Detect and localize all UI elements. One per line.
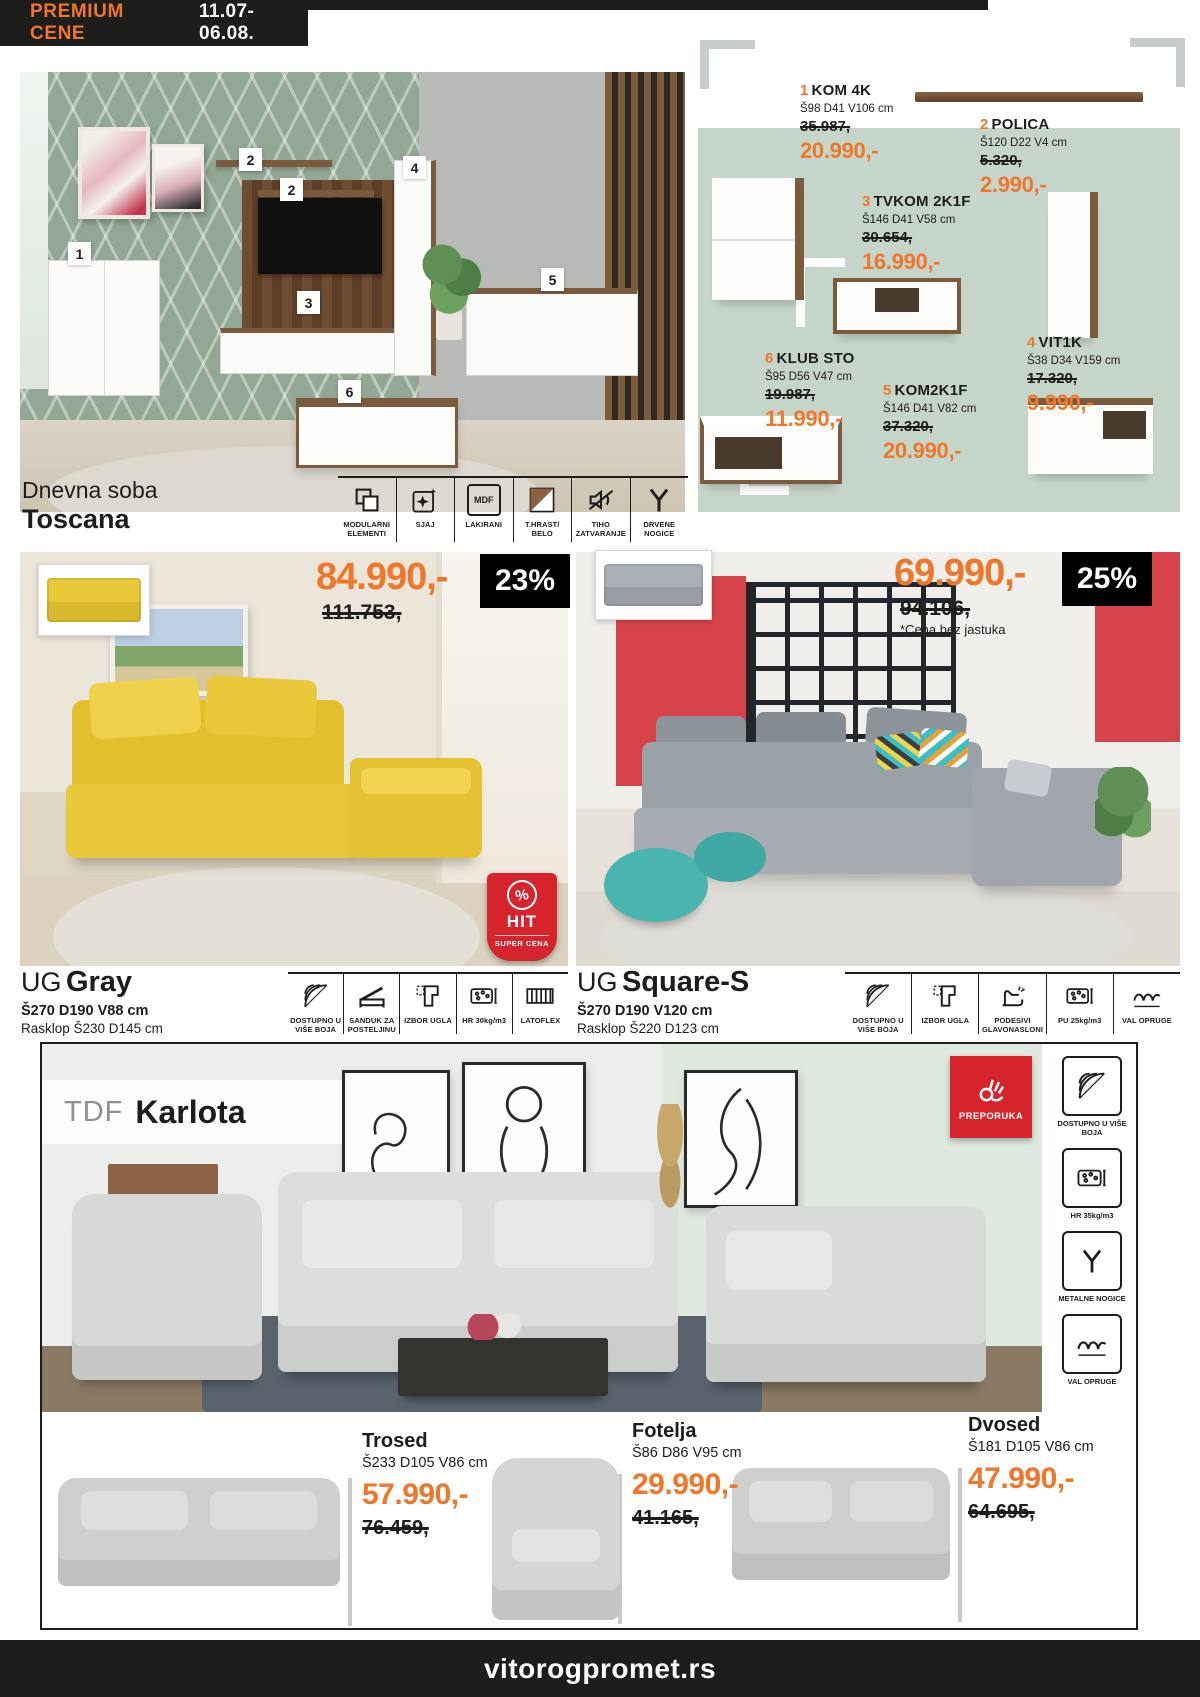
product-kom4k: 1KOM 4K Š98 D41 V106 cm 35.987, 20.990,- — [800, 82, 893, 164]
price: 16.990,- — [862, 248, 971, 276]
dimensions: Š233 D105 V86 cm — [362, 1454, 488, 1473]
price: 84.990,- — [316, 556, 447, 599]
feature-mdf: MDF LAKIRANI — [454, 478, 513, 542]
dimensions: Š181 D105 V86 cm — [968, 1438, 1094, 1457]
old-price: 5.320, — [980, 152, 1067, 171]
product-dims: Š146 D41 V58 cm — [862, 213, 971, 227]
karlota-title-band: TDF Karlota — [42, 1080, 342, 1144]
pillow — [918, 728, 970, 769]
feature-modular: MODULARNI ELEMENTI — [338, 478, 396, 542]
product-name: 3TVKOM 2K1F — [862, 193, 971, 212]
wave-springs-icon — [1132, 979, 1162, 1013]
foam-icon — [1065, 979, 1095, 1013]
fold-dimensions: Rasklop Š230 D145 cm — [21, 1022, 163, 1036]
product-polica: 2POLICA Š120 D22 V4 cm 5.320, 2.990,- — [980, 116, 1067, 198]
product-vit1k: 4VIT1K Š38 D34 V159 cm 17.320, 9.990,- — [1027, 334, 1120, 416]
product-name: 5KOM2K1F — [883, 382, 976, 401]
room-tag: 2 — [239, 148, 262, 171]
room-tag: 6 — [338, 380, 361, 403]
price: 9.990,- — [1027, 389, 1120, 417]
karlota-brand: TDF — [64, 1096, 123, 1129]
flyer-page: PREMIUM CENE 11.07-06.08. 1 2 2 3 4 5 6 — [0, 0, 1200, 1697]
price: 11.990,- — [765, 405, 855, 433]
coffee-table — [694, 832, 766, 882]
fold-dimensions: Rasklop Š220 D123 cm — [577, 1022, 749, 1036]
old-price: 30.654, — [862, 229, 971, 248]
product-klub-sto: 6KLUB STO Š95 D56 V47 cm 19.987, 11.990,… — [765, 350, 855, 432]
feature-foam-hr: HR 30kg/m3 — [456, 974, 512, 1034]
wall-shelf — [258, 190, 374, 197]
foldout-thumbnail — [595, 550, 712, 620]
wood-white-icon — [527, 483, 557, 517]
commode — [48, 260, 160, 396]
old-price: 94.106, — [900, 597, 970, 621]
product-tvkom: 3TVKOM 2K1F Š146 D41 V58 cm 30.654, 16.9… — [862, 193, 971, 275]
feature-wave-springs: VAL OPRUGE — [1050, 1314, 1134, 1386]
feature-colors: DOSTUPNO U VIŠE BOJA — [845, 974, 911, 1034]
dvosed-image — [732, 1468, 950, 1580]
promo-title: PREMIUM CENE — [30, 1, 183, 45]
item-trosed: Trosed Š233 D105 V86 cm 57.990,- 76.459, — [362, 1428, 488, 1541]
old-price: 19.987, — [765, 386, 855, 405]
feature-foam-pu: PU 25kg/m3 — [1046, 974, 1113, 1034]
feature-shine: SJAJ — [396, 478, 455, 542]
set-caption-type: Dnevna soba — [22, 478, 158, 504]
product-dims: Š98 D41 V106 cm — [800, 102, 893, 116]
room-tag: 3 — [297, 291, 320, 314]
metal-legs-icon — [1062, 1231, 1122, 1291]
wall-shelf — [216, 160, 332, 167]
color-fan-icon — [1062, 1056, 1122, 1116]
coffee-table — [398, 1338, 608, 1396]
color-fan-icon — [864, 979, 892, 1013]
two-seat-sofa — [706, 1206, 986, 1382]
old-price: 64.695, — [968, 1499, 1094, 1525]
window — [20, 72, 48, 389]
feature-silent-close: TIHO ZATVARANJE — [571, 478, 630, 542]
product-name: 4VIT1K — [1027, 334, 1120, 353]
toscana-feature-row: MODULARNI ELEMENTI SJAJ MDF LAKIRANI T.H… — [338, 476, 688, 542]
price: 29.990,- — [632, 1465, 742, 1504]
karlota-name: Karlota — [135, 1094, 245, 1131]
sofa-cushion — [205, 675, 318, 739]
feature-storage: SANDUK ZA POSTELJINU — [343, 974, 399, 1034]
price: 47.990,- — [968, 1459, 1094, 1498]
product-dims: Š95 D56 V47 cm — [765, 370, 855, 384]
wall-art — [152, 144, 204, 212]
feature-latoflex: LATOFLEX — [512, 974, 568, 1034]
coffee-table — [604, 848, 708, 922]
feature-foam-hr: HR 35kg/m3 — [1050, 1148, 1134, 1220]
plant — [1095, 767, 1151, 847]
sofa-seat — [66, 784, 366, 858]
corner-choice-icon — [414, 979, 442, 1013]
ug-gray-title: UG Gray Š270 D190 V88 cm Rasklop Š230 D1… — [21, 968, 163, 1035]
product-name: 6KLUB STO — [765, 350, 855, 369]
wooden-legs-icon — [644, 483, 674, 517]
coffee-table — [296, 398, 458, 468]
product-dims: Š38 D34 V159 cm — [1027, 354, 1120, 368]
foldout-sofa-sketch — [47, 578, 142, 621]
silent-close-icon — [586, 483, 616, 517]
feature-colors: DOSTUPNO U VIŠE BOJA — [288, 974, 343, 1034]
vit1k-image — [1048, 192, 1098, 338]
promo-date-range: 11.07-06.08. — [199, 1, 308, 45]
price: 57.990,- — [362, 1475, 488, 1514]
tv-stand — [220, 328, 408, 374]
room-tag: 5 — [541, 268, 564, 291]
toscana-room-photo: 1 2 2 3 4 5 6 — [20, 72, 685, 512]
preporuka-badge: PREPORUKA — [950, 1056, 1032, 1138]
footer-site-link[interactable]: vitorogpromet.rs — [484, 1653, 716, 1685]
karlota-feature-column: DOSTUPNO U VIŠE BOJA HR 35kg/m3 METALNE … — [1050, 1056, 1134, 1386]
separator — [958, 1468, 962, 1622]
product-dims: Š120 D22 V4 cm — [980, 136, 1067, 150]
sofa-cushion — [88, 676, 202, 740]
price: 2.990,- — [980, 171, 1067, 199]
separator — [348, 1478, 352, 1626]
room-tag: 2 — [280, 178, 303, 201]
tvkom-image — [833, 278, 961, 334]
foam-icon — [469, 979, 499, 1013]
discount-badge: 23% — [480, 554, 570, 608]
rug — [53, 867, 480, 966]
discount-badge: 25% — [1062, 552, 1152, 606]
pillow — [874, 731, 924, 771]
price-note: *Cena bez jastuka — [900, 622, 1006, 637]
feature-wave-springs: VAL OPRUGE — [1113, 974, 1180, 1034]
tv-screen — [258, 198, 382, 274]
wave-springs-icon — [1062, 1314, 1122, 1374]
header-badge: PREMIUM CENE 11.07-06.08. — [0, 0, 308, 46]
price: 20.990,- — [800, 137, 893, 165]
old-price: 76.459, — [362, 1515, 488, 1541]
shine-icon — [410, 483, 440, 517]
set-caption-name: Toscana — [22, 504, 158, 534]
corner-bracket — [700, 40, 755, 89]
adjustable-headrest-icon — [998, 979, 1028, 1013]
storage-box-icon — [357, 979, 387, 1013]
room-tag: 4 — [403, 156, 426, 179]
ug-square-title: UG Square-S Š270 D190 V120 cm Rasklop Š2… — [577, 968, 749, 1035]
polica-image — [915, 92, 1143, 102]
foldout-thumbnail — [38, 564, 150, 636]
dimensions: Š270 D190 V88 cm — [21, 1004, 163, 1019]
dried-plant — [640, 1104, 700, 1214]
feature-corner-choice: IZBOR UGLA — [911, 974, 978, 1034]
trosed-image — [58, 1478, 340, 1586]
room-tag: 1 — [68, 242, 91, 265]
old-price: 41.165, — [632, 1505, 742, 1531]
wall-art — [684, 1070, 798, 1208]
feature-corner-choice: IZBOR UGLA — [399, 974, 455, 1034]
feature-wooden-legs: DRVENE NOGICE — [630, 478, 689, 542]
item-fotelja: Fotelja Š86 D86 V95 cm 29.990,- 41.165, — [632, 1418, 742, 1531]
sofa-chaise — [350, 758, 482, 858]
color-fan-icon — [302, 979, 330, 1013]
feature-colors: DOSTUPNO U VIŠE BOJA — [1050, 1056, 1134, 1137]
ug-square-feature-row: DOSTUPNO U VIŠE BOJA IZBOR UGLA PODESIVI… — [845, 972, 1180, 1034]
kom4k-image — [712, 178, 804, 300]
dimensions: Š270 D190 V120 cm — [577, 1004, 749, 1019]
latoflex-icon — [525, 979, 555, 1013]
feature-metal-legs: METALNE NOGICE — [1050, 1231, 1134, 1303]
mdf-icon: MDF — [467, 483, 501, 517]
price: 69.990,- — [894, 552, 1025, 595]
old-price: 111.753, — [322, 601, 401, 625]
hit-super-cena-badge: % HIT SUPER CENA — [487, 873, 557, 961]
corner-choice-icon — [931, 979, 959, 1013]
armchair — [72, 1194, 262, 1380]
product-dims: Š146 D41 V82 cm — [883, 402, 976, 416]
foldout-sofa-sketch — [604, 564, 703, 606]
ok-hand-icon — [974, 1073, 1008, 1107]
item-dvosed: Dvosed Š181 D105 V86 cm 47.990,- 64.695, — [968, 1412, 1094, 1525]
feature-oak-white: T.HRAST/ BELO — [513, 478, 572, 542]
old-price: 35.987, — [800, 118, 893, 137]
old-price: 37.320, — [883, 418, 976, 437]
dimensions: Š86 D86 V95 cm — [632, 1444, 742, 1463]
footer-bar: vitorogpromet.rs — [0, 1640, 1200, 1697]
wall-art — [78, 127, 150, 219]
plant — [416, 230, 482, 316]
fotelja-image — [492, 1458, 620, 1620]
product-kom2k1f: 5KOM2K1F Š146 D41 V82 cm 37.320, 20.990,… — [883, 382, 976, 464]
product-name: 1KOM 4K — [800, 82, 893, 101]
corner-bracket — [1130, 38, 1185, 87]
ug-gray-feature-row: DOSTUPNO U VIŠE BOJA SANDUK ZA POSTELJIN… — [288, 972, 568, 1034]
foam-icon — [1062, 1148, 1122, 1208]
product-name: 2POLICA — [980, 116, 1067, 135]
feature-adjustable-headrests: PODESIVI GLAVONASLONI — [978, 974, 1045, 1034]
old-price: 17.320, — [1027, 370, 1120, 389]
set-caption: Dnevna soba Toscana — [22, 478, 158, 534]
percent-icon: % — [505, 878, 540, 913]
price: 20.990,- — [883, 437, 976, 465]
modular-elements-icon — [352, 483, 382, 517]
sideboard — [466, 288, 638, 376]
table-decor — [462, 1314, 532, 1340]
